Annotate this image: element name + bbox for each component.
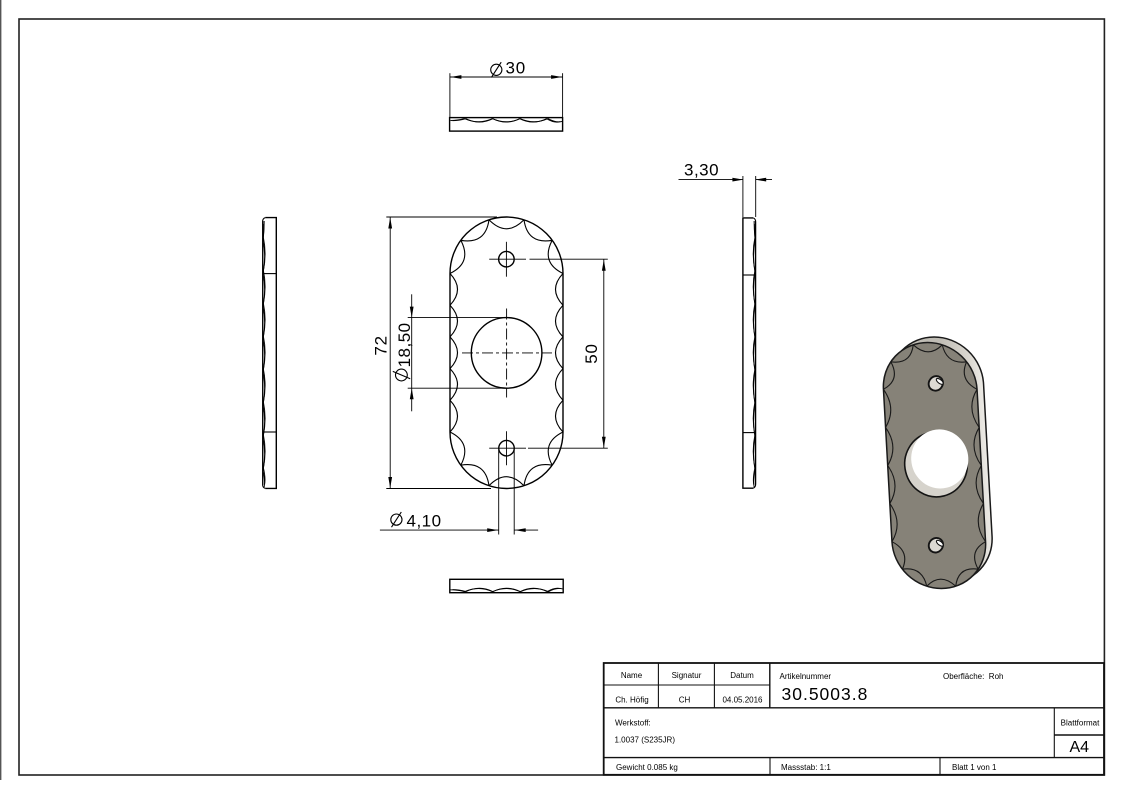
svg-text:72: 72 (371, 335, 390, 356)
svg-text:Signatur: Signatur (672, 671, 702, 680)
svg-text:30.5003.8: 30.5003.8 (782, 684, 869, 704)
svg-text:30: 30 (506, 59, 527, 78)
svg-text:Oberfläche: Roh: Oberfläche: Roh (943, 672, 1003, 681)
svg-text:1.0037 (S235JR): 1.0037 (S235JR) (615, 736, 676, 745)
svg-text:Werkstoff:: Werkstoff: (615, 719, 651, 728)
svg-text:18,50: 18,50 (395, 322, 414, 367)
svg-text:Gewicht 0.085 kg: Gewicht 0.085 kg (616, 763, 678, 772)
svg-text:Artikelnummer: Artikelnummer (780, 672, 832, 681)
svg-text:CH: CH (679, 695, 691, 704)
svg-text:Name: Name (621, 671, 643, 680)
svg-text:4,10: 4,10 (407, 512, 442, 531)
svg-text:A4: A4 (1070, 739, 1090, 756)
svg-text:04.05.2016: 04.05.2016 (722, 695, 763, 704)
svg-text:Blatt 1 von 1: Blatt 1 von 1 (952, 763, 997, 772)
svg-text:50: 50 (582, 343, 601, 364)
svg-text:Ch. Höfig: Ch. Höfig (615, 695, 648, 704)
svg-text:Massstab: 1:1: Massstab: 1:1 (781, 763, 831, 772)
svg-text:Datum: Datum (730, 671, 754, 680)
svg-text:Blattformat: Blattformat (1061, 719, 1100, 728)
svg-text:3,30: 3,30 (684, 161, 719, 180)
